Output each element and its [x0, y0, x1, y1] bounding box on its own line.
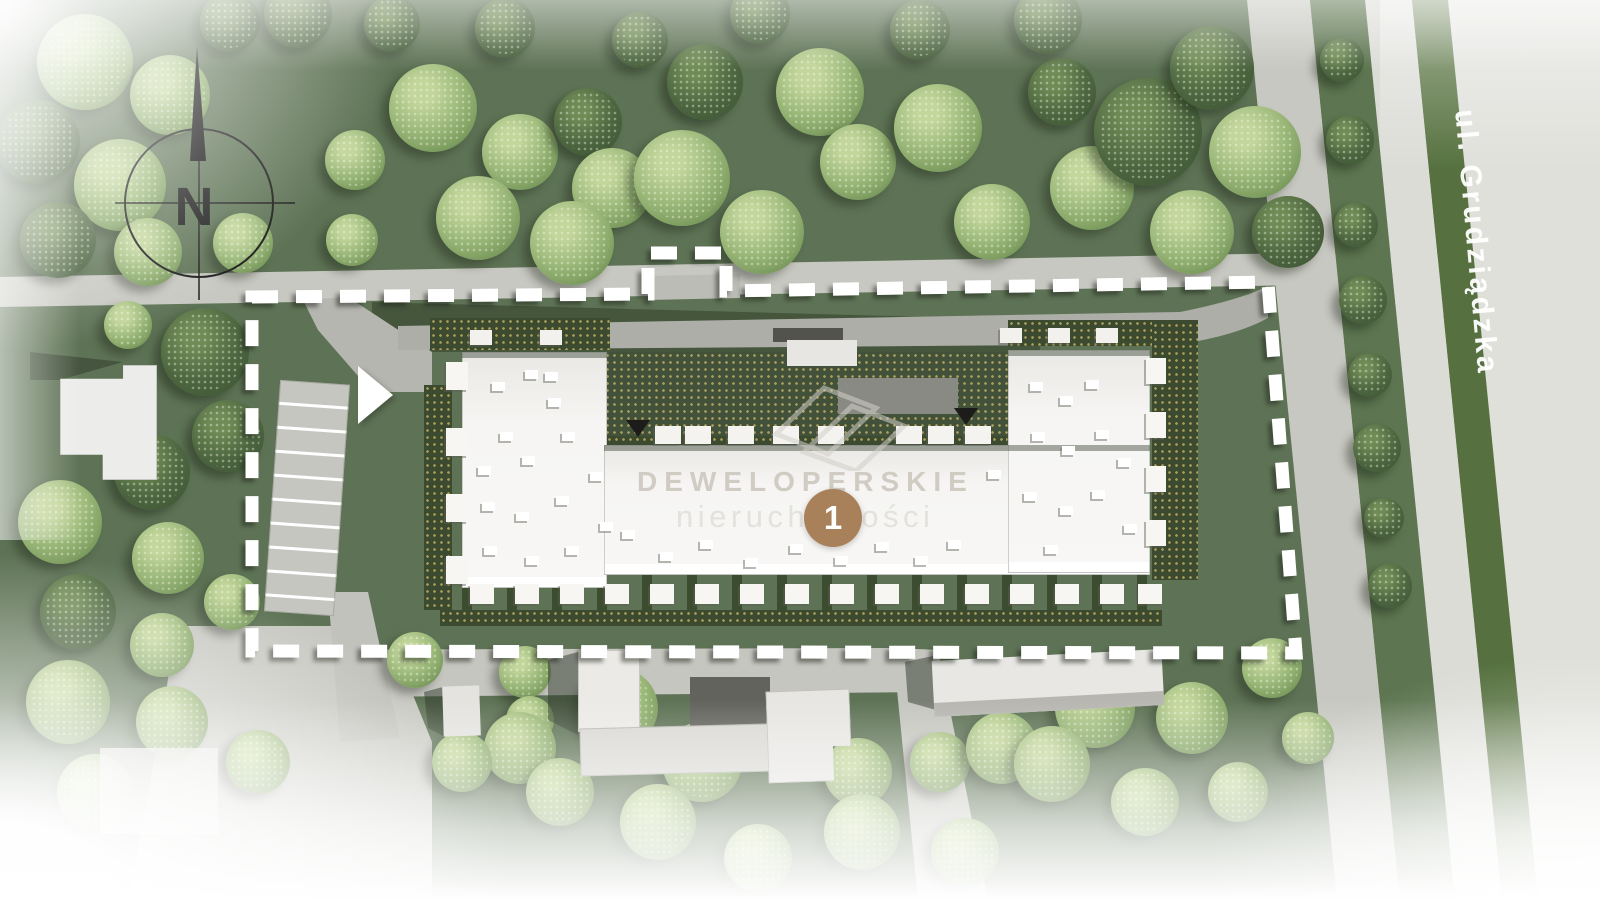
compass-needle-icon: [190, 46, 206, 161]
compass-north-label: N: [175, 177, 214, 237]
watermark-brand: DEWELOPERSKIE: [637, 466, 974, 498]
compass-rose: N: [105, 28, 305, 318]
site-entrance-arrow-icon: [358, 366, 393, 424]
building-1-marker[interactable]: 1: [804, 489, 862, 547]
developer-logo-icon: [766, 376, 916, 471]
site-plan-canvas: DEWELOPERSKIE nieruchomości 1 N ul. Grud…: [0, 0, 1600, 900]
